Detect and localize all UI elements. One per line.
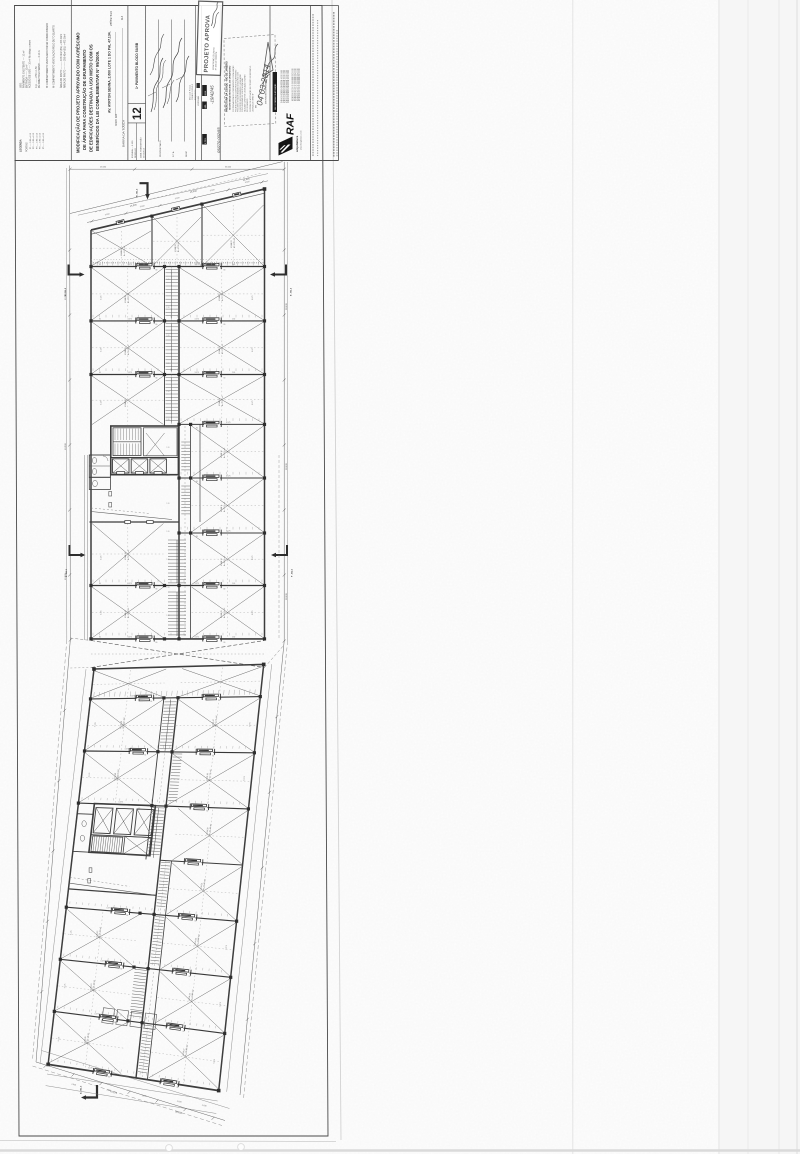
svg-text:3.575: 3.575 — [195, 318, 200, 320]
svg-text:80: 80 — [218, 700, 220, 702]
svg-text:ARQUITETO: ARQUITETO — [194, 89, 197, 100]
svg-text:80: 80 — [150, 701, 152, 703]
svg-text:ÁREA DO PAVTO ---------- 473.0: ÁREA DO PAVTO ---------- 473.09m² (BL) +… — [60, 34, 63, 88]
svg-text:80: 80 — [99, 264, 101, 266]
svg-text:80: 80 — [224, 378, 226, 380]
svg-text:PREFEITURA DA CIDADE - RIO DE: PREFEITURA DA CIDADE - RIO DE JANEIRO — [226, 61, 229, 112]
svg-text:3.575: 3.575 — [226, 531, 231, 533]
svg-text:-19/42/45: -19/42/45 — [210, 85, 215, 104]
svg-text:A= 40.08 m2: A= 40.08 m2 — [177, 242, 180, 252]
svg-text:3.575: 3.575 — [195, 636, 200, 638]
svg-text:LOJA 14: LOJA 14 — [124, 609, 127, 618]
svg-text:arquitetura: arquitetura — [295, 136, 299, 152]
svg-text:LOJA 04: LOJA 04 — [124, 294, 127, 303]
svg-text:1.20: 1.20 — [167, 279, 170, 281]
svg-text:1º PAVIMENTO BLOCO 5A/5B: 1º PAVIMENTO BLOCO 5A/5B — [135, 42, 139, 89]
svg-text:80: 80 — [120, 969, 122, 971]
svg-text:2.80: 2.80 — [232, 583, 235, 585]
svg-text:A= 51.16 m2: A= 51.16 m2 — [223, 448, 226, 458]
svg-text:PAVIMENTO: EXISTENTE ---- 10 m: PAVIMENTO: EXISTENTE ---- 10 m² — [23, 50, 26, 88]
svg-text:P1 ---- 0.80 x 2.10: P1 ---- 0.80 x 2.10 — [30, 132, 32, 149]
svg-text:1.20: 1.20 — [167, 615, 170, 617]
svg-text:LOJA 15: LOJA 15 — [220, 609, 223, 618]
svg-text:80: 80 — [224, 270, 226, 272]
svg-text:80: 80 — [189, 976, 191, 978]
svg-text:80: 80 — [156, 378, 158, 380]
svg-text:RAF: RAF — [285, 113, 297, 135]
svg-text:12: 12 — [132, 107, 144, 120]
svg-text:A= 48.96 m2: A= 48.96 m2 — [223, 608, 226, 618]
svg-text:3.575: 3.575 — [100, 961, 105, 963]
svg-text:LOJA 11: LOJA 11 — [220, 504, 223, 512]
svg-text:80: 80 — [138, 808, 140, 810]
svg-text:80: 80 — [212, 755, 214, 757]
svg-text:AV. AYRTON SENNA, 2.600 LOTE 1: AV. AYRTON SENNA, 2.600 LOTE 1 DO PAL 47… — [108, 31, 112, 113]
svg-text:3.575: 3.575 — [202, 694, 207, 696]
svg-text:3.575: 3.575 — [195, 372, 200, 374]
svg-text:PÉ DIREITO EXTERNO ------ 2.10: PÉ DIREITO EXTERNO ------ 2.10 m — [38, 50, 41, 88]
svg-text:80: 80 — [99, 583, 101, 585]
svg-text:XXIV RA: XXIV RA — [114, 113, 118, 126]
svg-text:3.575: 3.575 — [179, 913, 184, 915]
svg-text:3.575: 3.575 — [167, 1023, 172, 1025]
svg-text:3.575: 3.575 — [161, 1079, 166, 1081]
svg-text:CREA 82.1.02545-0: CREA 82.1.02545-0 — [191, 84, 194, 100]
svg-text:A= 49.37 m2: A= 49.37 m2 — [127, 345, 130, 355]
svg-text:3.575: 3.575 — [128, 636, 133, 638]
svg-text:28.630: 28.630 — [286, 463, 288, 470]
svg-text:PROPRIETÁRIO: PROPRIETÁRIO — [159, 140, 162, 157]
svg-text:Nº 322 DE 03/03/76: Nº 322 DE 03/03/76 — [214, 51, 218, 70]
svg-text:LOJA 01: LOJA 01 — [120, 247, 123, 256]
svg-text:3.575: 3.575 — [128, 583, 133, 585]
svg-text:3.575: 3.575 — [128, 318, 133, 320]
svg-text:80: 80 — [224, 642, 226, 644]
svg-text:A= 42.15 m2: A= 42.15 m2 — [123, 246, 126, 256]
svg-text:E - BL.5: E - BL.5 — [65, 287, 67, 296]
svg-text:1.20: 1.20 — [167, 475, 170, 477]
svg-text:1.20: 1.20 — [167, 587, 170, 589]
svg-text:MODIFICAÇÃO DE PROJETO APROVAD: MODIFICAÇÃO DE PROJETO APROVADO COM ACRÉ… — [76, 32, 81, 153]
svg-text:BARRA DA TIJUCA: BARRA DA TIJUCA — [122, 119, 126, 147]
svg-text:8.975: 8.975 — [252, 348, 254, 353]
svg-text:3.575: 3.575 — [88, 1068, 93, 1070]
svg-text:1.20: 1.20 — [167, 447, 170, 449]
svg-text:A= 47.71 m2: A= 47.71 m2 — [221, 396, 224, 406]
svg-text:9.125: 9.125 — [101, 296, 103, 301]
svg-text:A= 47.71 m2: A= 47.71 m2 — [221, 344, 224, 354]
svg-text:EM: EM — [255, 105, 257, 108]
svg-text:04/02/2014: 04/02/2014 — [143, 147, 145, 158]
svg-text:23.630: 23.630 — [100, 167, 107, 169]
svg-text:80: 80 — [114, 1022, 116, 1024]
svg-text:3.575: 3.575 — [106, 908, 111, 910]
svg-text:3.575: 3.575 — [118, 801, 123, 803]
svg-text:80: 80 — [156, 589, 158, 591]
svg-text:2.80: 2.80 — [232, 318, 235, 320]
svg-text:DESENHO: DESENHO — [135, 148, 137, 158]
svg-text:BENEFÍCIOS DA LEI COMPLEMENTAR: BENEFÍCIOS DA LEI COMPLEMENTAR Nº 99/200… — [95, 51, 100, 151]
svg-text:3.575: 3.575 — [128, 264, 133, 266]
svg-text:C.A. ------ 2.50 x 1.50: C.A. ------ 2.50 x 1.50 — [35, 66, 38, 88]
svg-text:1.20: 1.20 — [167, 363, 170, 365]
svg-text:3.575: 3.575 — [128, 372, 133, 374]
svg-text:80: 80 — [224, 324, 226, 326]
svg-text:36.640: 36.640 — [225, 167, 232, 169]
svg-text:3.575: 3.575 — [173, 968, 178, 970]
svg-text:RJ: RJ — [120, 16, 124, 20]
svg-text:80: 80 — [183, 1031, 185, 1033]
svg-text:1.20: 1.20 — [167, 503, 170, 505]
svg-text:80: 80 — [156, 270, 158, 272]
svg-text:80: 80 — [196, 428, 198, 430]
svg-text:28.630: 28.630 — [286, 303, 288, 310]
svg-text:LOJA 02: LOJA 02 — [174, 243, 177, 252]
svg-text:1.20: 1.20 — [167, 307, 170, 309]
svg-text:ESCALA --- 1:100: ESCALA --- 1:100 — [131, 140, 134, 158]
svg-text:ACESSO DE USO ---- 10 m² No a: ACESSO DE USO ---- 10 m² No abrigo comum — [29, 40, 32, 88]
svg-text:2.80: 2.80 — [232, 636, 235, 638]
svg-text:A= 48.96 m2: A= 48.96 m2 — [223, 556, 226, 566]
svg-text:F - BL.5: F - BL.5 — [292, 568, 294, 577]
svg-text:80: 80 — [144, 755, 146, 757]
svg-text:80: 80 — [224, 589, 226, 591]
svg-text:2.80: 2.80 — [232, 372, 235, 374]
svg-text:3.575: 3.575 — [190, 804, 195, 806]
svg-text:VISTO/DATA: VISTO/DATA — [197, 95, 200, 106]
svg-text:3.575: 3.575 — [226, 476, 231, 478]
svg-text:80: 80 — [99, 372, 101, 374]
svg-text:A - BL.5: A - BL.5 — [80, 1085, 83, 1094]
svg-text:3.575: 3.575 — [195, 264, 200, 266]
svg-text:P2 ---- 0.80 x 2.10: P2 ---- 0.80 x 2.10 — [33, 132, 35, 149]
svg-text:80: 80 — [177, 1087, 179, 1089]
svg-text:9.125: 9.125 — [101, 611, 103, 616]
svg-text:LOJA 08: LOJA 08 — [124, 398, 127, 407]
svg-text:80: 80 — [156, 642, 158, 644]
svg-text:www.rafarquitetura.com.br: www.rafarquitetura.com.br — [299, 130, 302, 150]
svg-text:3.575: 3.575 — [125, 748, 130, 750]
svg-text:ENTRADA ------- 10 m²: ENTRADA ------- 10 m² — [26, 64, 29, 88]
svg-text:05/270.002/65: 05/270.002/65 — [216, 127, 221, 153]
svg-text:3.575: 3.575 — [94, 1014, 99, 1016]
svg-text:28.630: 28.630 — [286, 593, 288, 600]
svg-text:LOJA 06: LOJA 06 — [124, 346, 127, 355]
svg-text:RESP.: RESP. — [186, 150, 188, 157]
svg-text:1.20: 1.20 — [167, 559, 170, 561]
svg-text:80: 80 — [99, 318, 101, 320]
svg-text:DE ÁREA PARA CONSTRUÇÃO DE GRU: DE ÁREA PARA CONSTRUÇÃO DE GRUPAMENTO — [82, 49, 87, 150]
svg-text:LOJA 13: LOJA 13 — [220, 557, 223, 566]
svg-text:Marcio A. Franca: Marcio A. Franca — [189, 84, 192, 100]
svg-text:1.20: 1.20 — [167, 391, 170, 393]
svg-text:A= 49.37 m2: A= 49.37 m2 — [127, 293, 130, 303]
svg-text:A= 45.80 m2: A= 45.80 m2 — [233, 238, 236, 248]
svg-text:80: 80 — [156, 324, 158, 326]
svg-text:DATA: TRANSMISSÃO: DATA: TRANSMISSÃO — [139, 137, 142, 158]
svg-text:A= 55.79 m2: A= 55.79 m2 — [127, 608, 130, 618]
svg-text:A= 47.71 m2: A= 47.71 m2 — [221, 291, 224, 301]
svg-text:3.575: 3.575 — [226, 422, 231, 424]
svg-text:80: 80 — [195, 921, 197, 923]
svg-text:1.20: 1.20 — [167, 335, 170, 337]
svg-text:LOJA 12: LOJA 12 — [124, 551, 127, 560]
svg-text:A= 55.79 m2: A= 55.79 m2 — [127, 550, 130, 560]
svg-text:USO:: USO: — [21, 82, 23, 88]
svg-text:P4 ---- 0.80 x 2.10: P4 ---- 0.80 x 2.10 — [40, 132, 42, 149]
svg-text:3.575: 3.575 — [196, 749, 201, 751]
svg-text:SECRETARIA MUNICIPAL DE URBANI: SECRETARIA MUNICIPAL DE URBANISMO — [229, 65, 232, 110]
svg-text:9.125: 9.125 — [101, 556, 103, 561]
svg-text:LOJA 10: LOJA 10 — [220, 449, 223, 458]
svg-text:9.125: 9.125 — [101, 348, 103, 353]
svg-text:1.20: 1.20 — [167, 531, 170, 533]
svg-text:P5 ---- 0.80 x 2.10: P5 ---- 0.80 x 2.10 — [43, 132, 45, 149]
svg-text:R.T.A: R.T.A — [172, 151, 175, 157]
svg-text:ÁREA DO PAVTO ---------- 256.4: ÁREA DO PAVTO ---------- 256.42m² (BL) +… — [64, 34, 67, 88]
svg-text:LOJA 07: LOJA 07 — [218, 345, 221, 354]
svg-text:10.500: 10.500 — [65, 443, 67, 450]
svg-text:80: 80 — [196, 536, 198, 538]
svg-text:1.20: 1.20 — [167, 419, 170, 421]
svg-text:8.975: 8.975 — [252, 401, 254, 406]
svg-text:DE EDIFICAÇÕES DESTINADA A USO: DE EDIFICAÇÕES DESTINADA A USO MISTO COM… — [89, 44, 94, 152]
svg-text:B - BL.5: B - BL.5 — [137, 188, 139, 197]
svg-text:8.975: 8.975 — [252, 296, 254, 301]
svg-text:3.575: 3.575 — [195, 583, 200, 585]
svg-text:80: 80 — [99, 636, 101, 638]
svg-text:F - BL.5: F - BL.5 — [66, 568, 68, 577]
svg-text:RIO DE JANEIRO: RIO DE JANEIRO — [246, 98, 249, 112]
svg-text:8.975: 8.975 — [252, 611, 254, 616]
svg-text:LOJA 03: LOJA 03 — [230, 239, 233, 248]
svg-text:9.125: 9.125 — [101, 401, 103, 406]
svg-text:LEGENDA: LEGENDA — [19, 139, 23, 152]
svg-text:80: 80 — [196, 481, 198, 483]
svg-text:80: 80 — [108, 1077, 110, 1079]
svg-text:LOJA 05: LOJA 05 — [218, 292, 221, 301]
svg-text:A= 51.16 m2: A= 51.16 m2 — [223, 502, 226, 512]
svg-text:80: 80 — [206, 810, 208, 812]
svg-text:8.975: 8.975 — [252, 556, 254, 561]
svg-text:PORTAS: PORTAS — [26, 142, 29, 152]
svg-text:3.575: 3.575 — [131, 695, 136, 697]
svg-text:E - BL.5: E - BL.5 — [291, 287, 293, 296]
svg-text:28ª/Nr 513: 28ª/Nr 513 — [109, 11, 113, 26]
svg-text:P3 ---- 0.80 x 2.10: P3 ---- 0.80 x 2.10 — [36, 132, 38, 149]
svg-text:80: 80 — [126, 915, 128, 917]
svg-text:LOJA 09: LOJA 09 — [218, 397, 221, 406]
